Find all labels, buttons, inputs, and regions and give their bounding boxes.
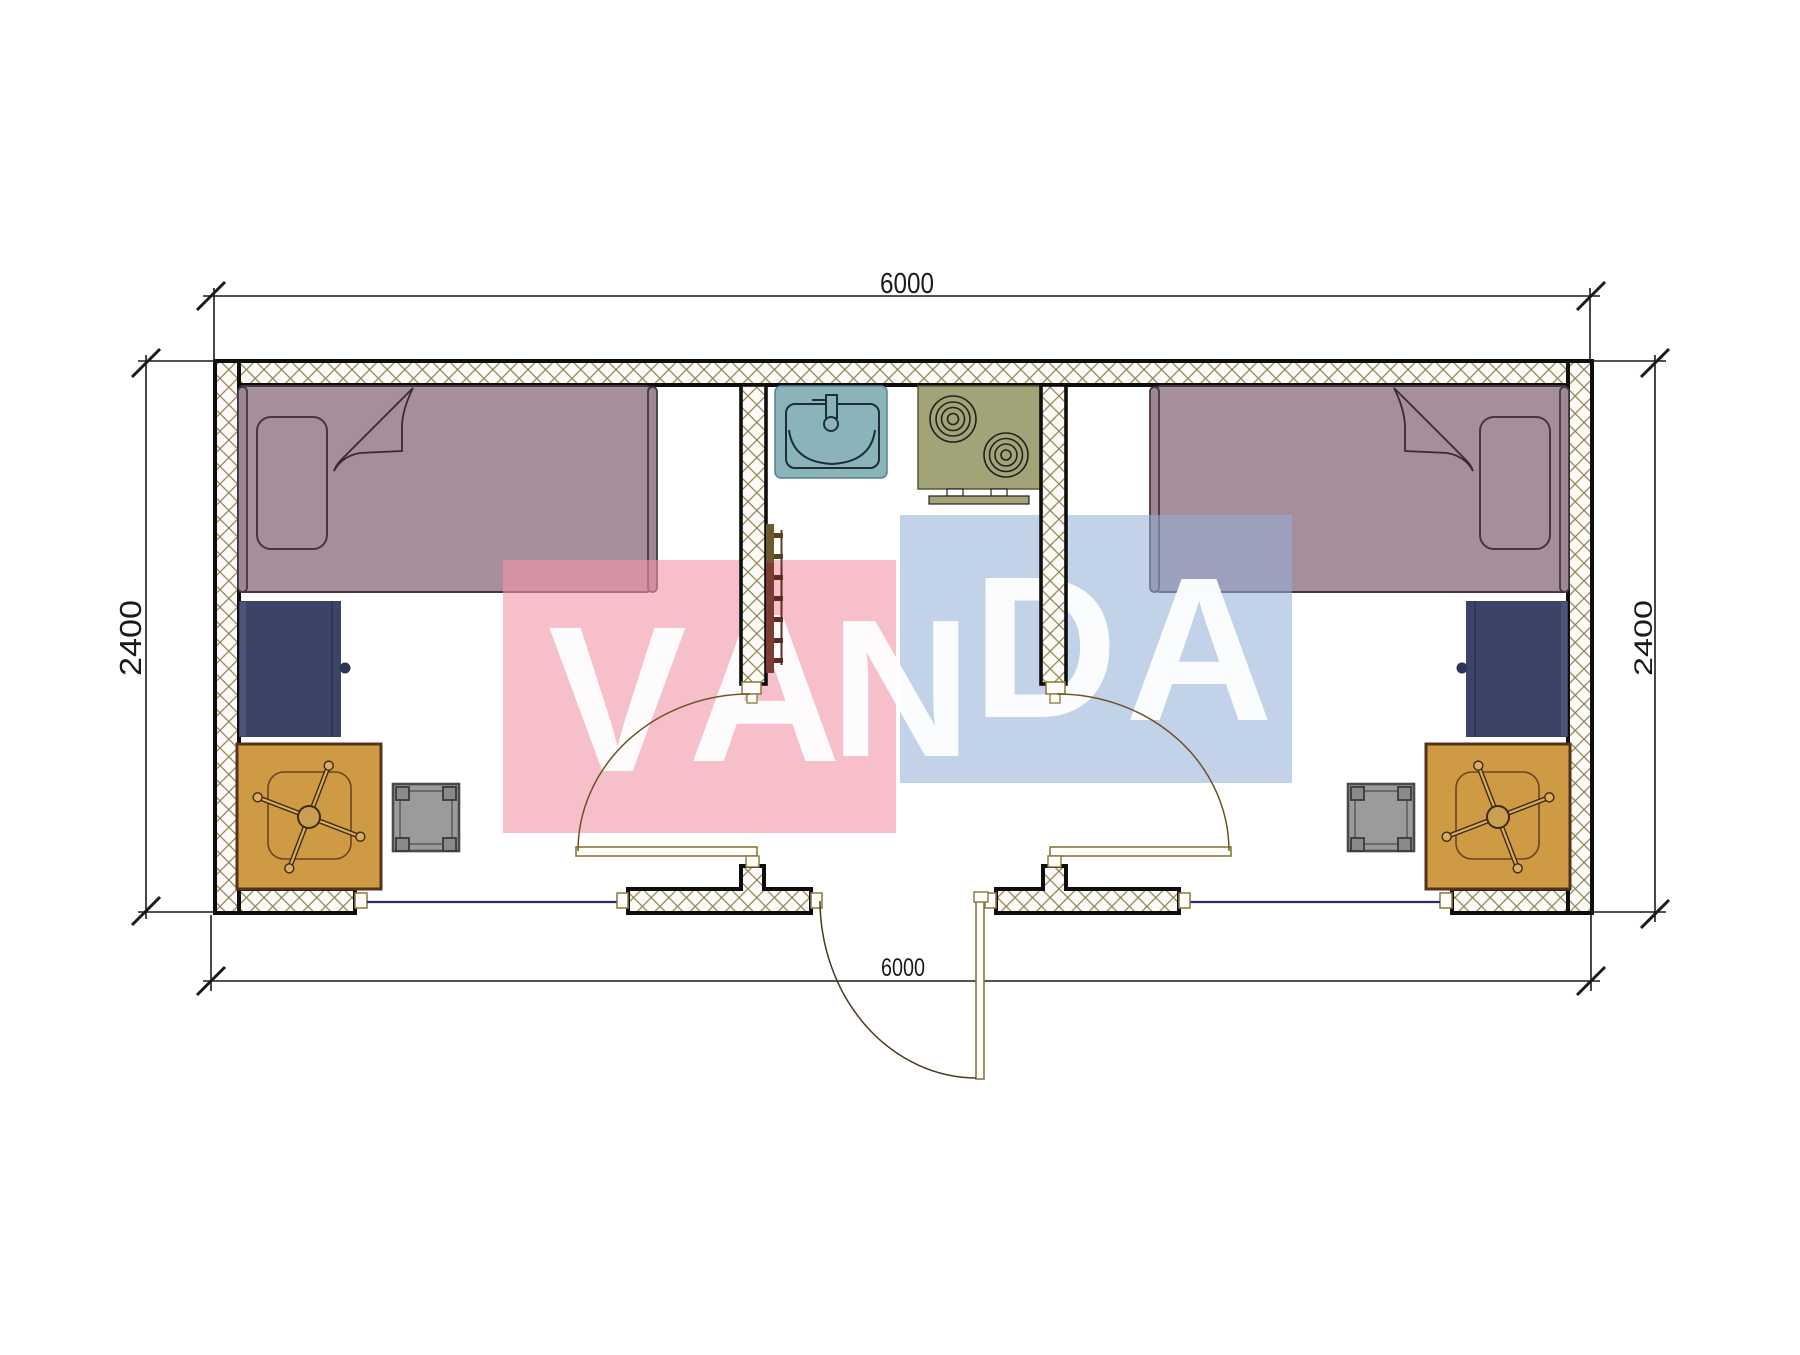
svg-text:2400: 2400: [1630, 600, 1658, 676]
svg-text:6000: 6000: [881, 954, 925, 982]
svg-text:N: N: [830, 579, 972, 798]
svg-text:A: A: [1125, 535, 1273, 764]
svg-text:2400: 2400: [113, 600, 148, 676]
svg-text:6000: 6000: [880, 268, 934, 300]
svg-text:V: V: [548, 584, 687, 816]
